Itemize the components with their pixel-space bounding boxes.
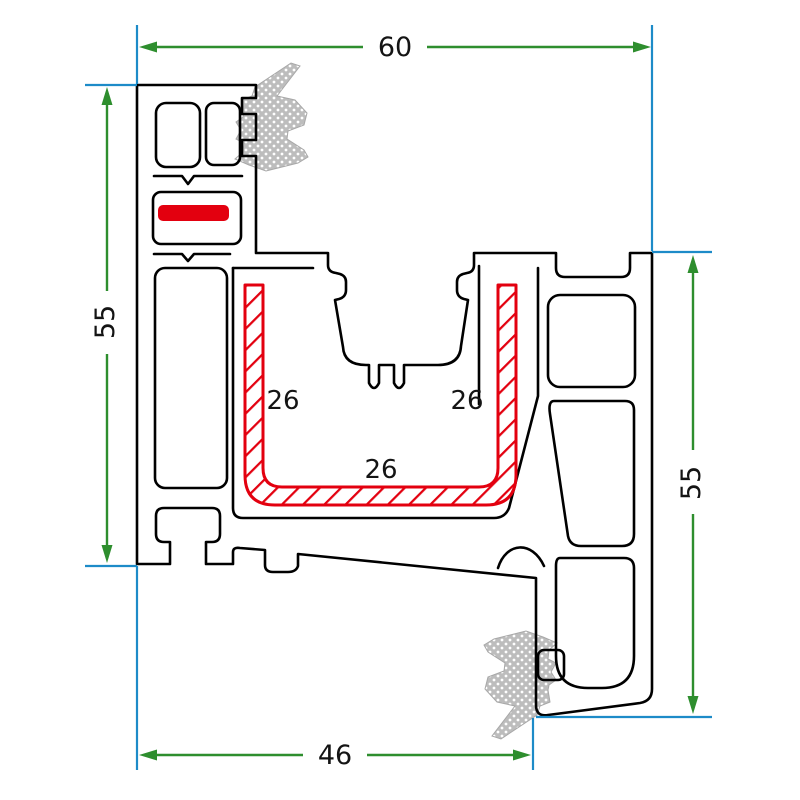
arrowhead-down — [102, 545, 113, 563]
reinforcement-label-right: 26 — [450, 386, 483, 416]
technical-drawing-canvas: 60 55 55 46 26 26 26 — [0, 0, 800, 800]
arrowhead-up — [102, 87, 113, 105]
arrowhead-right — [633, 42, 651, 53]
arrowhead-left — [139, 42, 157, 53]
dimension-label-top: 60 — [378, 32, 412, 63]
profile-drawing: 60 55 55 46 26 26 26 — [0, 0, 800, 800]
dimension-bottom-width: 46 — [139, 740, 531, 771]
dimension-label-left: 55 — [90, 305, 121, 339]
arrowhead-down — [688, 696, 699, 714]
dimension-label-bottom: 46 — [318, 740, 352, 771]
reinforcement-label-left: 26 — [266, 386, 299, 416]
dimension-top-width: 60 — [139, 32, 651, 63]
arrowhead-left — [139, 750, 157, 761]
gasket-bottom — [484, 631, 557, 739]
reinforcement-label-bottom: 26 — [364, 455, 397, 485]
dimension-right-height: 55 — [676, 255, 707, 714]
dimension-label-right: 55 — [676, 466, 707, 500]
insulation-bar-red — [158, 205, 229, 221]
arrowhead-right — [513, 750, 531, 761]
arrowhead-up — [688, 255, 699, 273]
dimension-left-height: 55 — [90, 87, 121, 563]
